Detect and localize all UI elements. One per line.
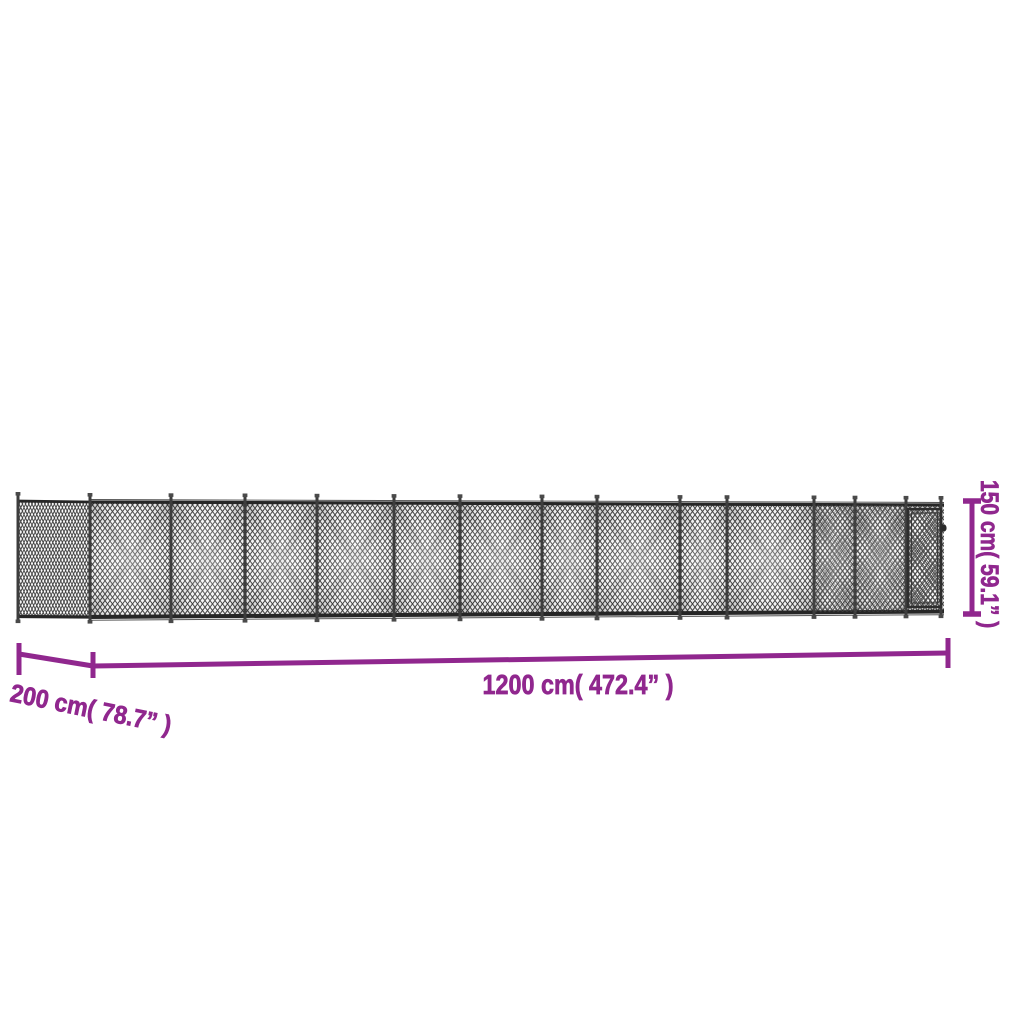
svg-text:200 cm( 78.7” ): 200 cm( 78.7” ) (8, 679, 174, 739)
svg-text:150 cm( 59.1” ): 150 cm( 59.1” ) (976, 480, 1004, 628)
svg-text:1200 cm( 472.4” ): 1200 cm( 472.4” ) (483, 670, 674, 700)
